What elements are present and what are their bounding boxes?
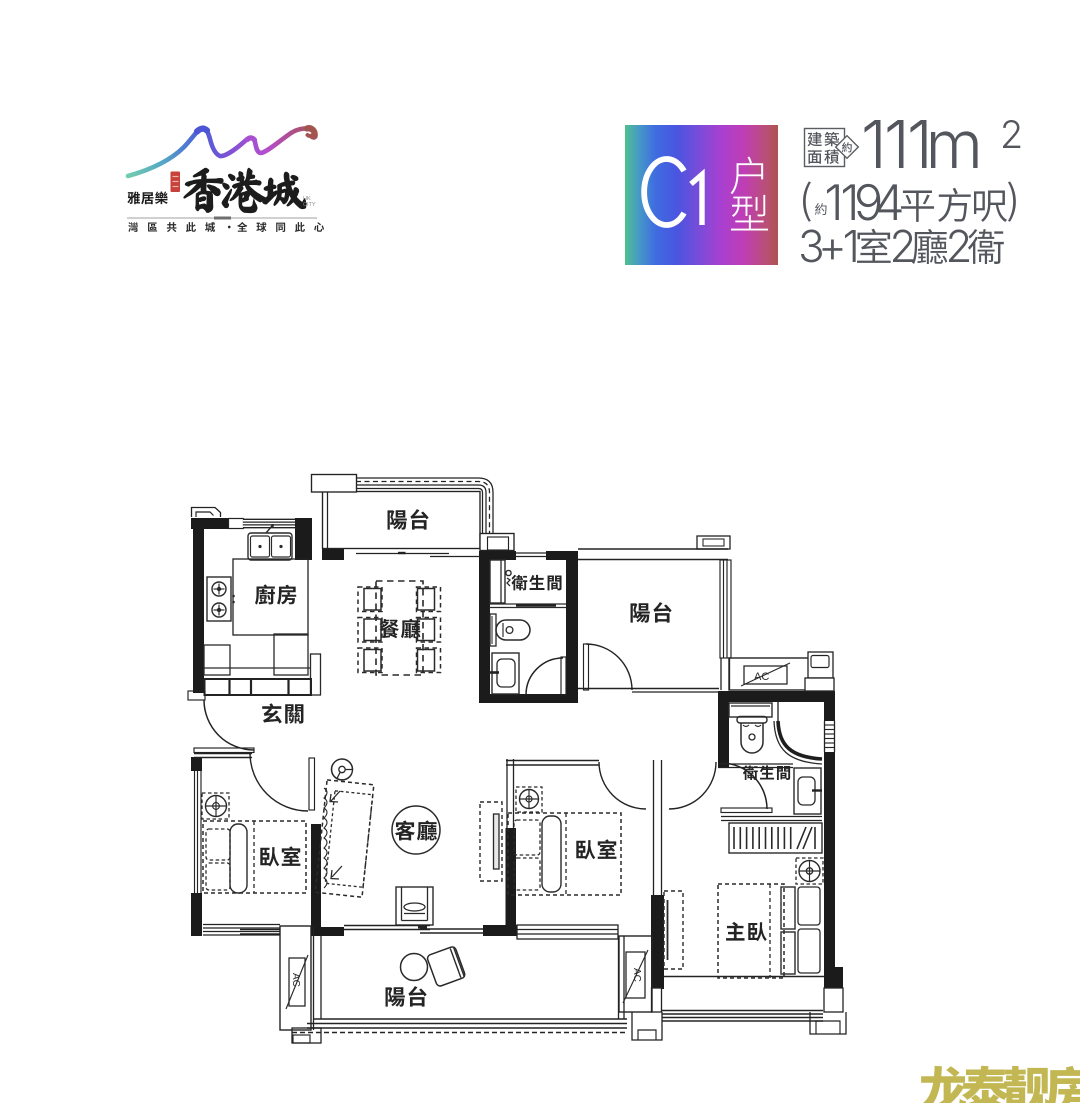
svg-text:AC: AC [631, 968, 642, 982]
svg-text:AC: AC [290, 973, 301, 987]
svg-text:AC: AC [754, 671, 769, 683]
svg-text:CITY: CITY [303, 202, 316, 208]
